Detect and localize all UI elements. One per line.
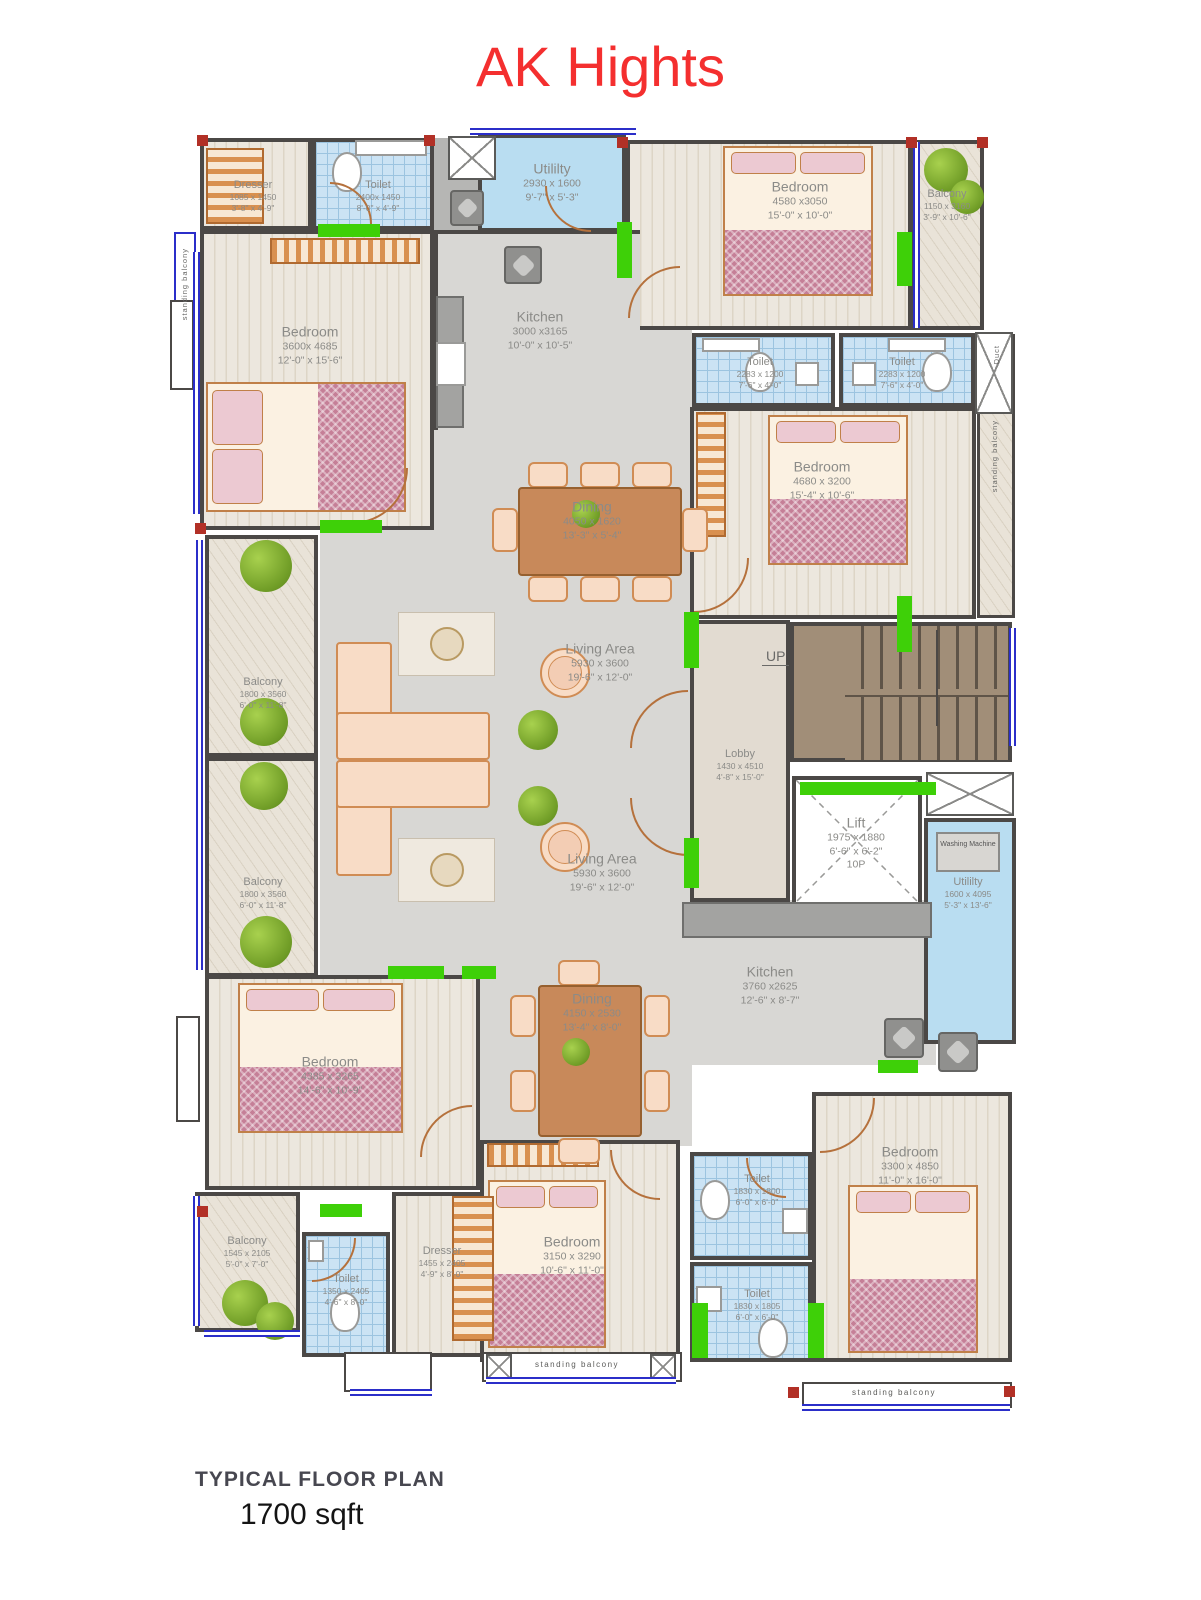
bed	[848, 1185, 978, 1353]
sink	[938, 1032, 978, 1072]
stove	[436, 342, 466, 386]
chair	[492, 508, 518, 552]
chair	[510, 1070, 536, 1112]
room-dim-mm: 3300 x 4850	[878, 1160, 942, 1174]
chair	[580, 576, 620, 602]
room-label-toilet: Toilet1830 x 18056'-0" x 6'-0"	[734, 1287, 781, 1323]
corner-marker-red	[788, 1387, 799, 1398]
toilet-seat	[758, 1318, 788, 1358]
room-dim-mm: 1350 x 2405	[323, 1286, 370, 1297]
room-dim-ft: 5'-3" x 13'-6"	[944, 900, 992, 911]
room-label-toilet: Toilet2283 x 12007'-6" x 4'-0"	[879, 355, 926, 391]
room-dim-mm: 4150 x 2530	[563, 1007, 622, 1021]
duct-box	[926, 772, 1014, 816]
chair	[528, 576, 568, 602]
window-block-green	[800, 782, 936, 795]
room-dim-ft: 8'-0" x 4'-9"	[356, 203, 400, 214]
room-name: Dresser	[230, 178, 277, 192]
room-name: Balcony	[240, 875, 287, 889]
room-label-bedroom: Bedroom4680 x 320015'-4" x 10'-6"	[790, 457, 855, 502]
coffee-table	[430, 627, 464, 661]
mini-balcony	[344, 1352, 432, 1392]
room-label-balcony: Balcony1800 x 35606'-0" x 11'-8"	[240, 675, 287, 711]
plant	[518, 786, 558, 826]
chair	[644, 1070, 670, 1112]
standing-balcony-bottom-label: standing balcony	[535, 1360, 619, 1369]
window-block-green	[684, 838, 699, 888]
floor-drain	[504, 246, 542, 284]
window-block-green	[808, 1303, 824, 1358]
room-name: Balcony	[224, 1234, 271, 1248]
room-name: Bedroom	[298, 1052, 363, 1070]
room-name: Bedroom	[878, 1142, 942, 1160]
room-label-balcony: Balcony1150 x 31603'-9" x 10'-6"	[923, 187, 971, 223]
room-label-dining: Dining4050 x 162013'-3" x 5'-4"	[563, 497, 622, 542]
stair-direction-arrow	[936, 630, 938, 726]
room-label-balcony: Balcony1800 x 35606'-0" x 11'-8"	[240, 875, 287, 911]
room-label-dresser: Dresser1455 x 24054'-9" x 8'-0"	[419, 1244, 466, 1280]
room-dim-mm: 1800 x 3560	[240, 689, 287, 700]
pillow	[246, 989, 319, 1011]
corner-marker-red	[977, 137, 988, 148]
room-label-toilet: Toilet2283 x 12007'-6" x 4'-0"	[737, 355, 784, 391]
window-sill	[176, 1016, 200, 1122]
room-label-kitchen: Kitchen3760 x262512'-6" x 8'-7"	[741, 962, 800, 1007]
room-dim-ft: 15'-4" x 10'-6"	[790, 489, 855, 503]
room-name: Bedroom	[278, 322, 343, 340]
pillow	[323, 989, 396, 1011]
room-dim-mm: 3600x 4685	[278, 340, 343, 354]
room-dim-mm: 5930 x 3600	[567, 867, 636, 881]
room-name: Dining	[563, 497, 622, 515]
room-dim-mm: 1150 x 3160	[923, 201, 971, 212]
room-dim-mm: 1800 x 3560	[240, 889, 287, 900]
bed-blanket	[770, 499, 906, 563]
wardrobe	[270, 238, 420, 264]
room-name: Bedroom	[540, 1232, 604, 1250]
sofa	[336, 760, 490, 808]
pillow	[212, 449, 263, 504]
room-dim-mm: 4050 x 1620	[563, 515, 622, 529]
window-block-green	[462, 966, 496, 979]
standing-balcony-right-label: standing balcony	[990, 420, 999, 492]
room-dim-mm: 4580 x3050	[768, 195, 833, 209]
rug	[398, 838, 495, 902]
room-dim-ft: 6'-0" x 11'-8"	[240, 700, 287, 711]
room-label-toilet: Toilet2400x 14508'-0" x 4'-9"	[356, 178, 400, 214]
window-block-green	[320, 1204, 362, 1217]
toilet-seat	[700, 1180, 730, 1220]
chair	[632, 462, 672, 488]
window-block-green	[692, 1303, 708, 1358]
room-dim-ft: 11'-0" x 16'-0"	[878, 1174, 942, 1188]
chair	[528, 462, 568, 488]
bed-pillows	[490, 1182, 604, 1212]
sink	[884, 1018, 924, 1058]
room-dim-ft: 9'-7" x 5'-3"	[523, 191, 581, 205]
pillow	[915, 1191, 970, 1213]
corner-marker-red	[906, 137, 917, 148]
room-name: Lobby	[716, 747, 764, 761]
room-name: Toilet	[879, 355, 926, 369]
room-dim-ft: 3'-9" x 10'-6"	[923, 212, 971, 223]
room-name: Toilet	[356, 178, 400, 192]
chair	[632, 576, 672, 602]
corner-marker-red	[617, 137, 628, 148]
room-dim-ft: 13'-4" x 8'-0"	[563, 1021, 622, 1035]
plant	[240, 540, 292, 592]
window-blue	[196, 540, 203, 970]
bed-blanket	[850, 1279, 976, 1351]
plan-caption: TYPICAL FLOOR PLAN	[195, 1468, 445, 1492]
room-dim-mm: 4385 x 3265	[298, 1070, 363, 1084]
room-dim-ft: 10'-6" x 11'-0"	[540, 1264, 604, 1278]
room-label-balcony: Balcony1545 x 21055'-0" x 7'-0"	[224, 1234, 271, 1270]
room-dim-mm: 1430 x 4510	[716, 761, 764, 772]
bed-pillows	[725, 148, 871, 178]
standing-balcony-bottom-right-label: standing balcony	[852, 1388, 936, 1397]
room-dim-ft: 19'-6" x 12'-0"	[565, 671, 634, 685]
room-label-living: Living Area5930 x 360019'-6" x 12'-0"	[567, 849, 636, 894]
rug	[398, 612, 495, 676]
plan-area: 1700 sqft	[240, 1498, 363, 1532]
duct-box	[448, 136, 496, 180]
chair	[510, 995, 536, 1037]
stair-flight-lower	[845, 695, 1008, 760]
pillow	[731, 152, 796, 174]
room-dim-mm: 2400x 1450	[356, 192, 400, 203]
plant	[518, 710, 558, 750]
chair	[558, 1138, 600, 1164]
lift-capacity: 10P	[827, 859, 885, 873]
bed-blanket	[490, 1274, 604, 1346]
room-name: Balcony	[240, 675, 287, 689]
room-dim-ft: 6'-0" x 6'-0"	[734, 1197, 781, 1208]
room-name: Living Area	[565, 639, 634, 657]
room-dim-mm: 2930 x 1600	[523, 177, 581, 191]
window-block-green	[617, 222, 632, 278]
room-name: Lift	[827, 813, 885, 831]
room-dim-mm: 1975 x 1880	[827, 832, 885, 846]
plant	[562, 1038, 590, 1066]
room-name: Bedroom	[768, 177, 833, 195]
floor-drain	[450, 190, 484, 226]
room-name: Toilet	[323, 1272, 370, 1286]
wash-basin	[782, 1208, 808, 1234]
room-label-lift: Lift1975 x 18806'-6" x 6'-2"10P	[827, 813, 885, 872]
pillow	[776, 421, 836, 443]
plant	[240, 762, 288, 810]
room-label-utility: Utililty2930 x 16009'-7" x 5'-3"	[523, 159, 581, 204]
vanity-counter	[702, 338, 760, 352]
window-block-green	[684, 612, 699, 668]
room-label-toilet: Toilet1830 x 18006'-0" x 6'-0"	[734, 1172, 781, 1208]
room-dim-ft: 13'-3" x 5'-4"	[563, 529, 622, 543]
chair	[644, 995, 670, 1037]
room-dim-mm: 3760 x2625	[741, 980, 800, 994]
pillow	[212, 390, 263, 445]
room-name: Utililty	[944, 875, 992, 889]
room-dim-mm: 1830 x 1805	[734, 1301, 781, 1312]
room-dim-mm: 2283 x 1200	[737, 369, 784, 380]
room-label-bedroom: Bedroom4580 x305015'-0" x 10'-0"	[768, 177, 833, 222]
room-name: Kitchen	[741, 962, 800, 980]
corner-marker-red	[197, 1206, 208, 1217]
window-blue	[486, 1377, 676, 1384]
pillow	[840, 421, 900, 443]
room-label-bedroom: Bedroom3600x 468512'-0" x 15'-6"	[278, 322, 343, 367]
room-dim-ft: 4'-8" x 15'-0"	[716, 772, 764, 783]
room-dim-ft: 7'-6" x 4'-0"	[737, 380, 784, 391]
corner-marker-red	[424, 135, 435, 146]
room-name: Bedroom	[790, 457, 855, 475]
bed-pillows	[240, 985, 401, 1015]
bed-pillows	[850, 1187, 976, 1217]
room-dim-ft: 3'-8" x 4'-9"	[230, 203, 277, 214]
room-name: Balcony	[923, 187, 971, 201]
room-name: Toilet	[737, 355, 784, 369]
chair	[682, 508, 708, 552]
corner-marker-red	[1004, 1386, 1015, 1397]
corner-marker-red	[197, 135, 208, 146]
page-title: AK Hights	[0, 34, 1201, 99]
room-dim-mm: 5930 x 3600	[565, 657, 634, 671]
window-blue	[193, 252, 200, 514]
room-label-bedroom: Bedroom3150 x 329010'-6" x 11'-0"	[540, 1232, 604, 1277]
coffee-table	[430, 853, 464, 887]
bed-pillows	[770, 417, 906, 447]
chair	[558, 960, 600, 986]
room-dim-mm: 3150 x 3290	[540, 1250, 604, 1264]
room-dim-mm: 3000 x3165	[508, 325, 573, 339]
window-blue	[350, 1389, 432, 1396]
room-dim-mm: 4680 x 3200	[790, 475, 855, 489]
bed-blanket	[725, 230, 871, 294]
pillow	[800, 152, 865, 174]
wash-basin	[852, 362, 876, 386]
room-label-utility: Utililty1600 x 40955'-3" x 13'-6"	[944, 875, 992, 911]
stairs-up-label: UP	[762, 648, 789, 666]
vanity-counter	[355, 140, 427, 156]
room-dim-mm: 1545 x 2105	[224, 1248, 271, 1259]
room-dim-ft: 6'-6" x 6'-2"	[827, 845, 885, 859]
room-dim-mm: 2283 x 1200	[879, 369, 926, 380]
room-label-lobby: Lobby1430 x 45104'-8" x 15'-0"	[716, 747, 764, 783]
window-blue	[1009, 628, 1016, 746]
window-block-green	[320, 520, 382, 533]
room-dim-ft: 4'-6" x 8'-0"	[323, 1297, 370, 1308]
room-dim-mm: 1600 x 4095	[944, 889, 992, 900]
washing-machine: Washing Machine	[936, 832, 1000, 872]
vanity-counter	[888, 338, 946, 352]
room-name: Kitchen	[508, 307, 573, 325]
window-blue	[470, 128, 636, 135]
floor-plan-page: { "title": "AK Hights", "footer": { "lin…	[0, 0, 1201, 1600]
room-name: Dresser	[419, 1244, 466, 1258]
room-label-dining: Dining4150 x 253013'-4" x 8'-0"	[563, 989, 622, 1034]
window-block-green	[897, 232, 912, 286]
window-block-green	[897, 596, 912, 652]
room-dim-ft: 10'-0" x 10'-5"	[508, 339, 573, 353]
room-label-bedroom: Bedroom3300 x 485011'-0" x 16'-0"	[878, 1142, 942, 1187]
corner-marker-red	[195, 523, 206, 534]
chair	[580, 462, 620, 488]
room-dim-ft: 4'-9" x 8'-0"	[419, 1269, 466, 1280]
window-block-green	[878, 1060, 918, 1073]
room-label-toilet: Toilet1350 x 24054'-6" x 8'-0"	[323, 1272, 370, 1308]
window-block-green	[318, 224, 380, 237]
room-label-dresser: Dresser1085 x 14503'-8" x 4'-9"	[230, 178, 277, 214]
room-name: Toilet	[734, 1172, 781, 1186]
room-dim-ft: 7'-6" x 4'-0"	[879, 380, 926, 391]
room-dim-ft: 6'-0" x 11'-8"	[240, 900, 287, 911]
pillow	[856, 1191, 911, 1213]
room-label-kitchen: Kitchen3000 x316510'-0" x 10'-5"	[508, 307, 573, 352]
standing-balcony-left-label: standing balcony	[180, 248, 189, 320]
room-dim-ft: 6'-0" x 6'-0"	[734, 1312, 781, 1323]
bed-pillows	[208, 384, 267, 510]
kitchen-counter	[682, 902, 932, 938]
room-label-living: Living Area5930 x 360019'-6" x 12'-0"	[565, 639, 634, 684]
room-dim-ft: 15'-0" x 10'-0"	[768, 209, 833, 223]
sofa	[336, 712, 490, 760]
plant	[240, 916, 292, 968]
pillow	[549, 1186, 598, 1208]
wash-basin	[795, 362, 819, 386]
window-blue	[204, 1330, 300, 1337]
room-dim-ft: 12'-6" x 8'-7"	[741, 994, 800, 1008]
room-label-bedroom: Bedroom4385 x 326514'-6" x 10'-9"	[298, 1052, 363, 1097]
room-dim-mm: 1085 x 1450	[230, 192, 277, 203]
duct-label: Duct	[992, 345, 1001, 364]
room-dim-mm: 1455 x 2405	[419, 1258, 466, 1269]
pillow	[496, 1186, 545, 1208]
toilet-seat	[922, 352, 952, 392]
window-block-green	[388, 966, 444, 979]
stair-flight-upper	[845, 626, 1008, 689]
room-name: Toilet	[734, 1287, 781, 1301]
room-dim-ft: 19'-6" x 12'-0"	[567, 881, 636, 895]
room-name: Living Area	[567, 849, 636, 867]
room-dim-ft: 5'-0" x 7'-0"	[224, 1259, 271, 1270]
window-blue	[913, 142, 920, 328]
room-dim-mm: 1830 x 1800	[734, 1186, 781, 1197]
window-blue	[802, 1404, 1010, 1411]
room-dim-ft: 12'-0" x 15'-6"	[278, 354, 343, 368]
room-dim-ft: 14'-6" x 10'-9"	[298, 1084, 363, 1098]
room-name: Utililty	[523, 159, 581, 177]
room-name: Dining	[563, 989, 622, 1007]
